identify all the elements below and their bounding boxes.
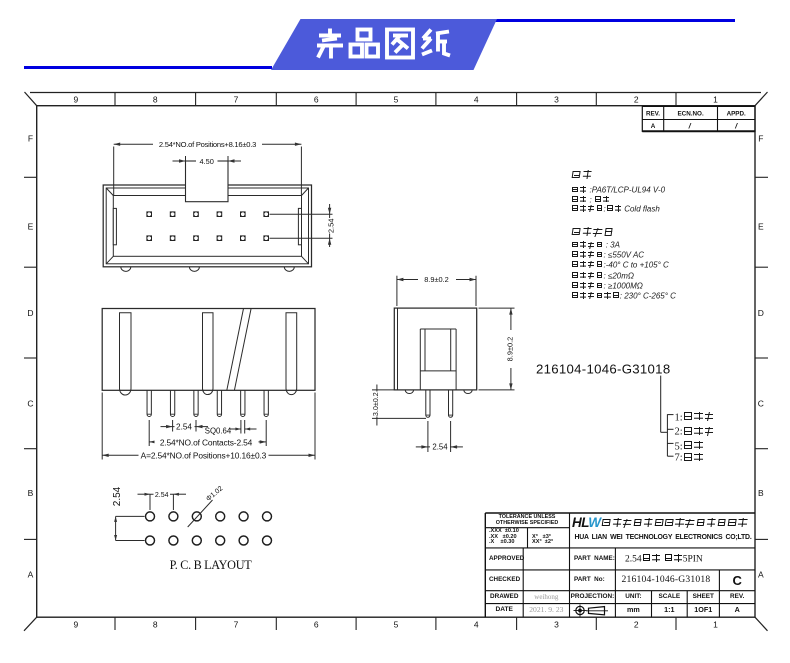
svg-text:/: / bbox=[734, 122, 738, 131]
svg-text:2.54: 2.54 bbox=[155, 492, 169, 499]
svg-text:A: A bbox=[28, 570, 34, 580]
svg-text:2.54: 2.54 bbox=[432, 442, 448, 451]
svg-text:216104-1046-G31018: 216104-1046-G31018 bbox=[536, 361, 670, 376]
svg-text:B: B bbox=[758, 488, 764, 498]
svg-text:1: 1 bbox=[713, 619, 718, 629]
svg-text:C: C bbox=[758, 399, 764, 409]
svg-text:2.54: 2.54 bbox=[327, 218, 336, 233]
svg-text:P. C. B LAYOUT: P. C. B LAYOUT bbox=[170, 558, 253, 572]
svg-text:5: 5 bbox=[394, 95, 399, 105]
svg-text:8.9±0.2: 8.9±0.2 bbox=[505, 337, 514, 362]
svg-text:3: 3 bbox=[554, 619, 559, 629]
svg-text:F: F bbox=[758, 134, 763, 144]
svg-text:4.50: 4.50 bbox=[200, 157, 214, 166]
svg-text:A: A bbox=[651, 123, 656, 130]
svg-text:2: 2 bbox=[634, 619, 639, 629]
svg-text:5: 5 bbox=[394, 619, 399, 629]
svg-text:6: 6 bbox=[314, 619, 319, 629]
svg-text:4: 4 bbox=[474, 619, 479, 629]
svg-text:A: A bbox=[758, 570, 764, 580]
svg-text:8: 8 bbox=[153, 619, 158, 629]
svg-text:/: / bbox=[688, 122, 692, 131]
svg-text:9: 9 bbox=[74, 619, 79, 629]
svg-text:Φ1.02: Φ1.02 bbox=[205, 485, 224, 503]
svg-text:7: 7 bbox=[234, 95, 239, 105]
svg-text:2.54*NO.of Contacts-2.54: 2.54*NO.of Contacts-2.54 bbox=[160, 437, 253, 447]
svg-text:REV.: REV. bbox=[646, 110, 660, 117]
svg-text:E: E bbox=[28, 222, 34, 232]
svg-text:3.0±0.2: 3.0±0.2 bbox=[371, 392, 380, 416]
svg-text:7: 7 bbox=[234, 619, 239, 629]
svg-text:D: D bbox=[758, 308, 764, 318]
svg-text:3: 3 bbox=[554, 95, 559, 105]
svg-text:2.54*NO.of Positions+8.16±0.3: 2.54*NO.of Positions+8.16±0.3 bbox=[159, 140, 256, 149]
svg-text:C: C bbox=[27, 399, 33, 409]
svg-text:D: D bbox=[27, 308, 33, 318]
svg-text:A=2.54*NO.of Positions+10.16±0: A=2.54*NO.of Positions+10.16±0.3 bbox=[141, 450, 267, 460]
svg-text:4: 4 bbox=[474, 95, 479, 105]
svg-text:9: 9 bbox=[74, 95, 79, 105]
svg-text:2: 2 bbox=[634, 95, 639, 105]
svg-text:E: E bbox=[758, 222, 764, 232]
svg-text:1: 1 bbox=[713, 95, 718, 105]
svg-text:F: F bbox=[28, 134, 33, 144]
svg-text:B: B bbox=[28, 488, 34, 498]
svg-text:8.9±0.2: 8.9±0.2 bbox=[424, 275, 449, 284]
svg-text:2.54: 2.54 bbox=[112, 486, 123, 506]
svg-text:6: 6 bbox=[314, 95, 319, 105]
svg-text:SQ0.64: SQ0.64 bbox=[205, 427, 232, 436]
svg-text:8: 8 bbox=[153, 95, 158, 105]
svg-text:APPD.: APPD. bbox=[727, 110, 746, 117]
svg-text:ECN.NO.: ECN.NO. bbox=[677, 110, 703, 117]
svg-text:2.54: 2.54 bbox=[176, 422, 192, 431]
